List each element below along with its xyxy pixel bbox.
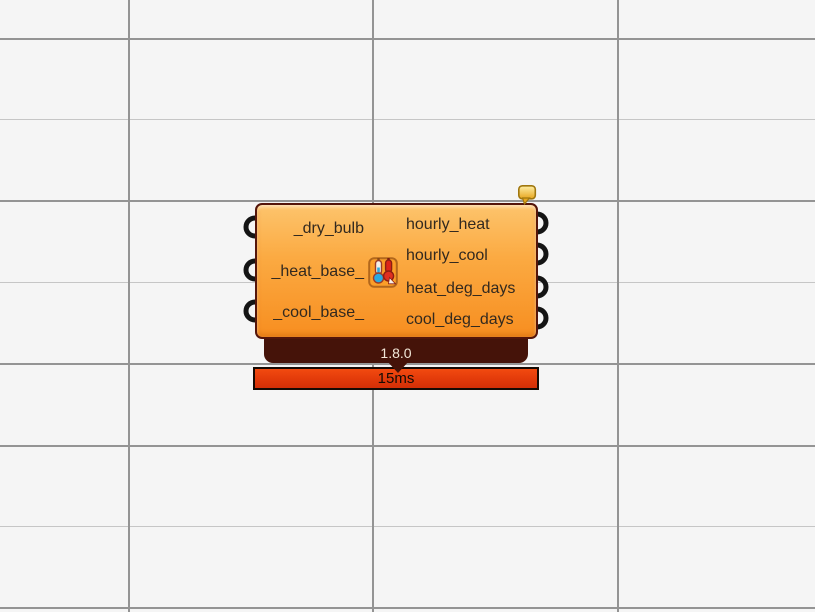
version-label: 1.8.0 <box>380 343 411 363</box>
version-badge: 1.8.0 <box>264 336 528 363</box>
version-badge-tail <box>387 361 409 373</box>
input-label-cool-base: _cool_base_ <box>261 304 364 322</box>
grid-line <box>0 526 815 527</box>
grid-line <box>0 607 815 609</box>
output-label-hourly-cool: hourly_cool <box>406 247 534 265</box>
grasshopper-canvas[interactable]: 1.8.0 _dry_bulb _heat_base_ _cool_base_ … <box>0 0 815 612</box>
grid-line <box>617 0 619 612</box>
thermometers-icon <box>368 257 398 293</box>
grid-line <box>0 200 815 202</box>
output-label-cool-deg-days: cool_deg_days <box>406 311 534 329</box>
grid-line <box>0 38 815 40</box>
grid-line <box>0 445 815 447</box>
grid-line <box>128 0 130 612</box>
degree-days-component[interactable]: _dry_bulb _heat_base_ _cool_base_ hourly… <box>255 203 538 339</box>
comment-balloon-icon[interactable] <box>516 183 540 212</box>
input-label-heat-base: _heat_base_ <box>261 263 364 281</box>
grid-line <box>0 119 815 120</box>
input-label-dry-bulb: _dry_bulb <box>261 220 364 238</box>
output-label-hourly-heat: hourly_heat <box>406 216 534 234</box>
output-label-heat-deg-days: heat_deg_days <box>406 280 534 298</box>
